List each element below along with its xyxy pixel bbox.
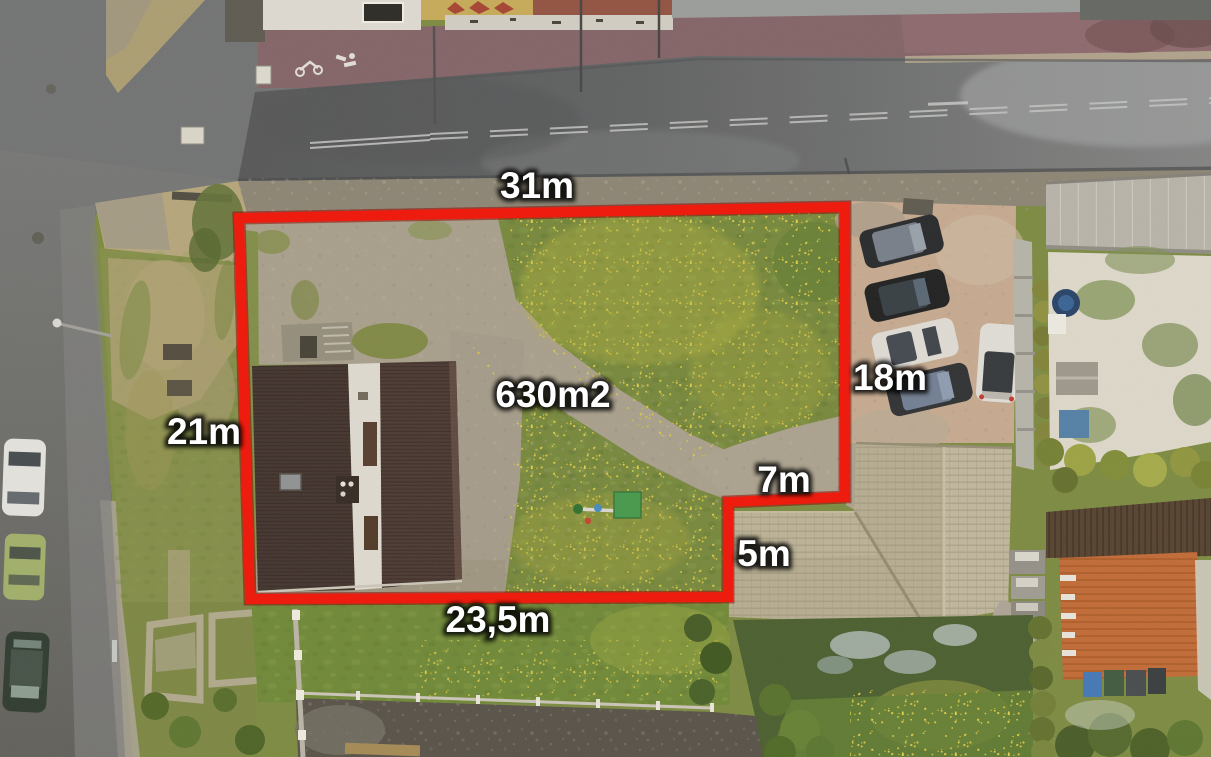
svg-text:5m: 5m [737, 533, 790, 574]
svg-text:18m: 18m [853, 357, 927, 398]
svg-text:630m2: 630m2 [495, 374, 610, 415]
svg-text:23,5m: 23,5m [446, 599, 551, 640]
svg-text:7m: 7m [757, 459, 810, 500]
svg-text:31m: 31m [500, 165, 574, 206]
svg-text:21m: 21m [167, 411, 241, 452]
